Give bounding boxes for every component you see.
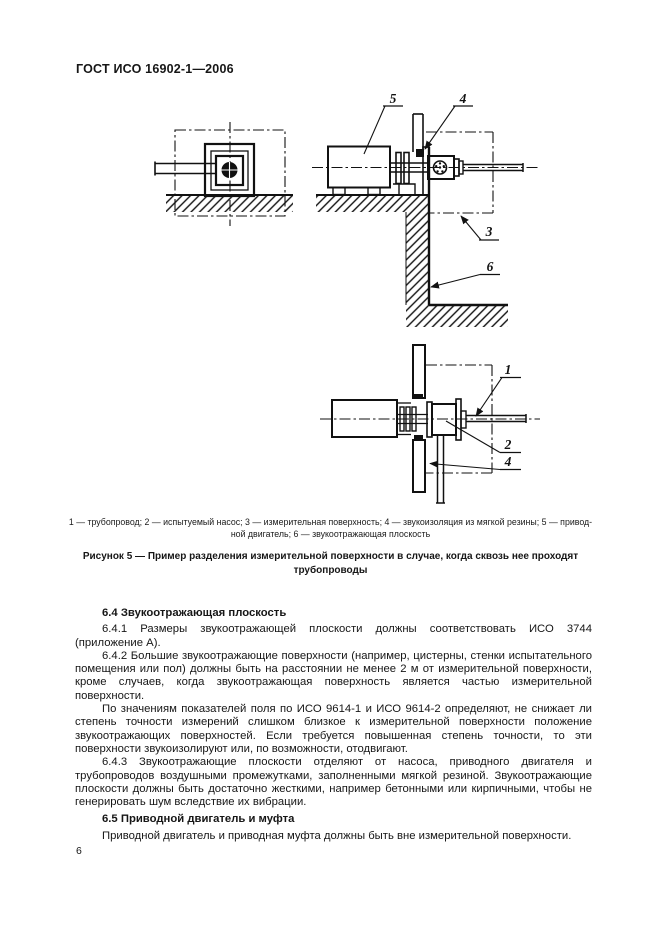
- bottom-diagram: 1 2 4: [320, 345, 540, 503]
- paragraph-6-4-2: 6.4.2 Большие звукоотражающие поверхност…: [75, 650, 592, 703]
- paragraph-6-4-2-cont: По значениям показателей поля по ИСО 961…: [75, 703, 592, 756]
- rubber-insulation-mark: [416, 149, 424, 157]
- paragraph-6-5: Приводной двигатель и приводная муфта до…: [75, 830, 592, 843]
- callout-5: 5: [390, 91, 397, 106]
- caption-line-1: Рисунок 5 — Пример разделения измеритель…: [60, 550, 601, 564]
- callout-6: 6: [487, 259, 494, 274]
- legend-line-2: ной двигатель; 6 — звукоотражающая плоск…: [50, 528, 611, 540]
- section-6-5-heading: 6.5 Приводной двигатель и муфта: [75, 813, 592, 826]
- figure-caption: Рисунок 5 — Пример разделения измеритель…: [60, 550, 601, 577]
- caption-line-2: трубопроводы: [60, 564, 601, 578]
- callout-2: 2: [504, 437, 512, 452]
- callout-group-top: 5 4 3 6: [364, 91, 500, 287]
- callout-4-top: 4: [459, 91, 467, 106]
- rubber-insulation-mark: [414, 435, 423, 440]
- reflecting-wall-upper: [413, 345, 425, 398]
- rubber-insulation-mark: [414, 394, 423, 399]
- page-number: 6: [76, 845, 82, 857]
- callout-4-bottom: 4: [504, 454, 512, 469]
- paragraph-6-4-3: 6.4.3 Звукоотражающие плоскости отделяют…: [75, 756, 592, 809]
- pump-end-view: [155, 122, 293, 226]
- legend-line-1: 1 — трубопровод; 2 — испытуемый насос; 3…: [50, 516, 611, 528]
- figure-legend: 1 — трубопровод; 2 — испытуемый насос; 3…: [50, 516, 611, 540]
- pump-side-view: 5 4 3 6: [312, 91, 540, 327]
- reflecting-wall-lower: [413, 440, 425, 492]
- body-text: 6.4 Звукоотражающая плоскость 6.4.1 Разм…: [75, 607, 592, 843]
- paragraph-6-4-1: 6.4.1 Размеры звукоотражающей плоскости …: [75, 623, 592, 650]
- figure-5-diagram: 5 4 3 6: [0, 0, 661, 520]
- section-6-4-heading: 6.4 Звукоотражающая плоскость: [75, 607, 592, 620]
- callout-1: 1: [505, 362, 512, 377]
- callout-3: 3: [485, 224, 493, 239]
- top-diagram: 5 4 3 6: [155, 91, 540, 327]
